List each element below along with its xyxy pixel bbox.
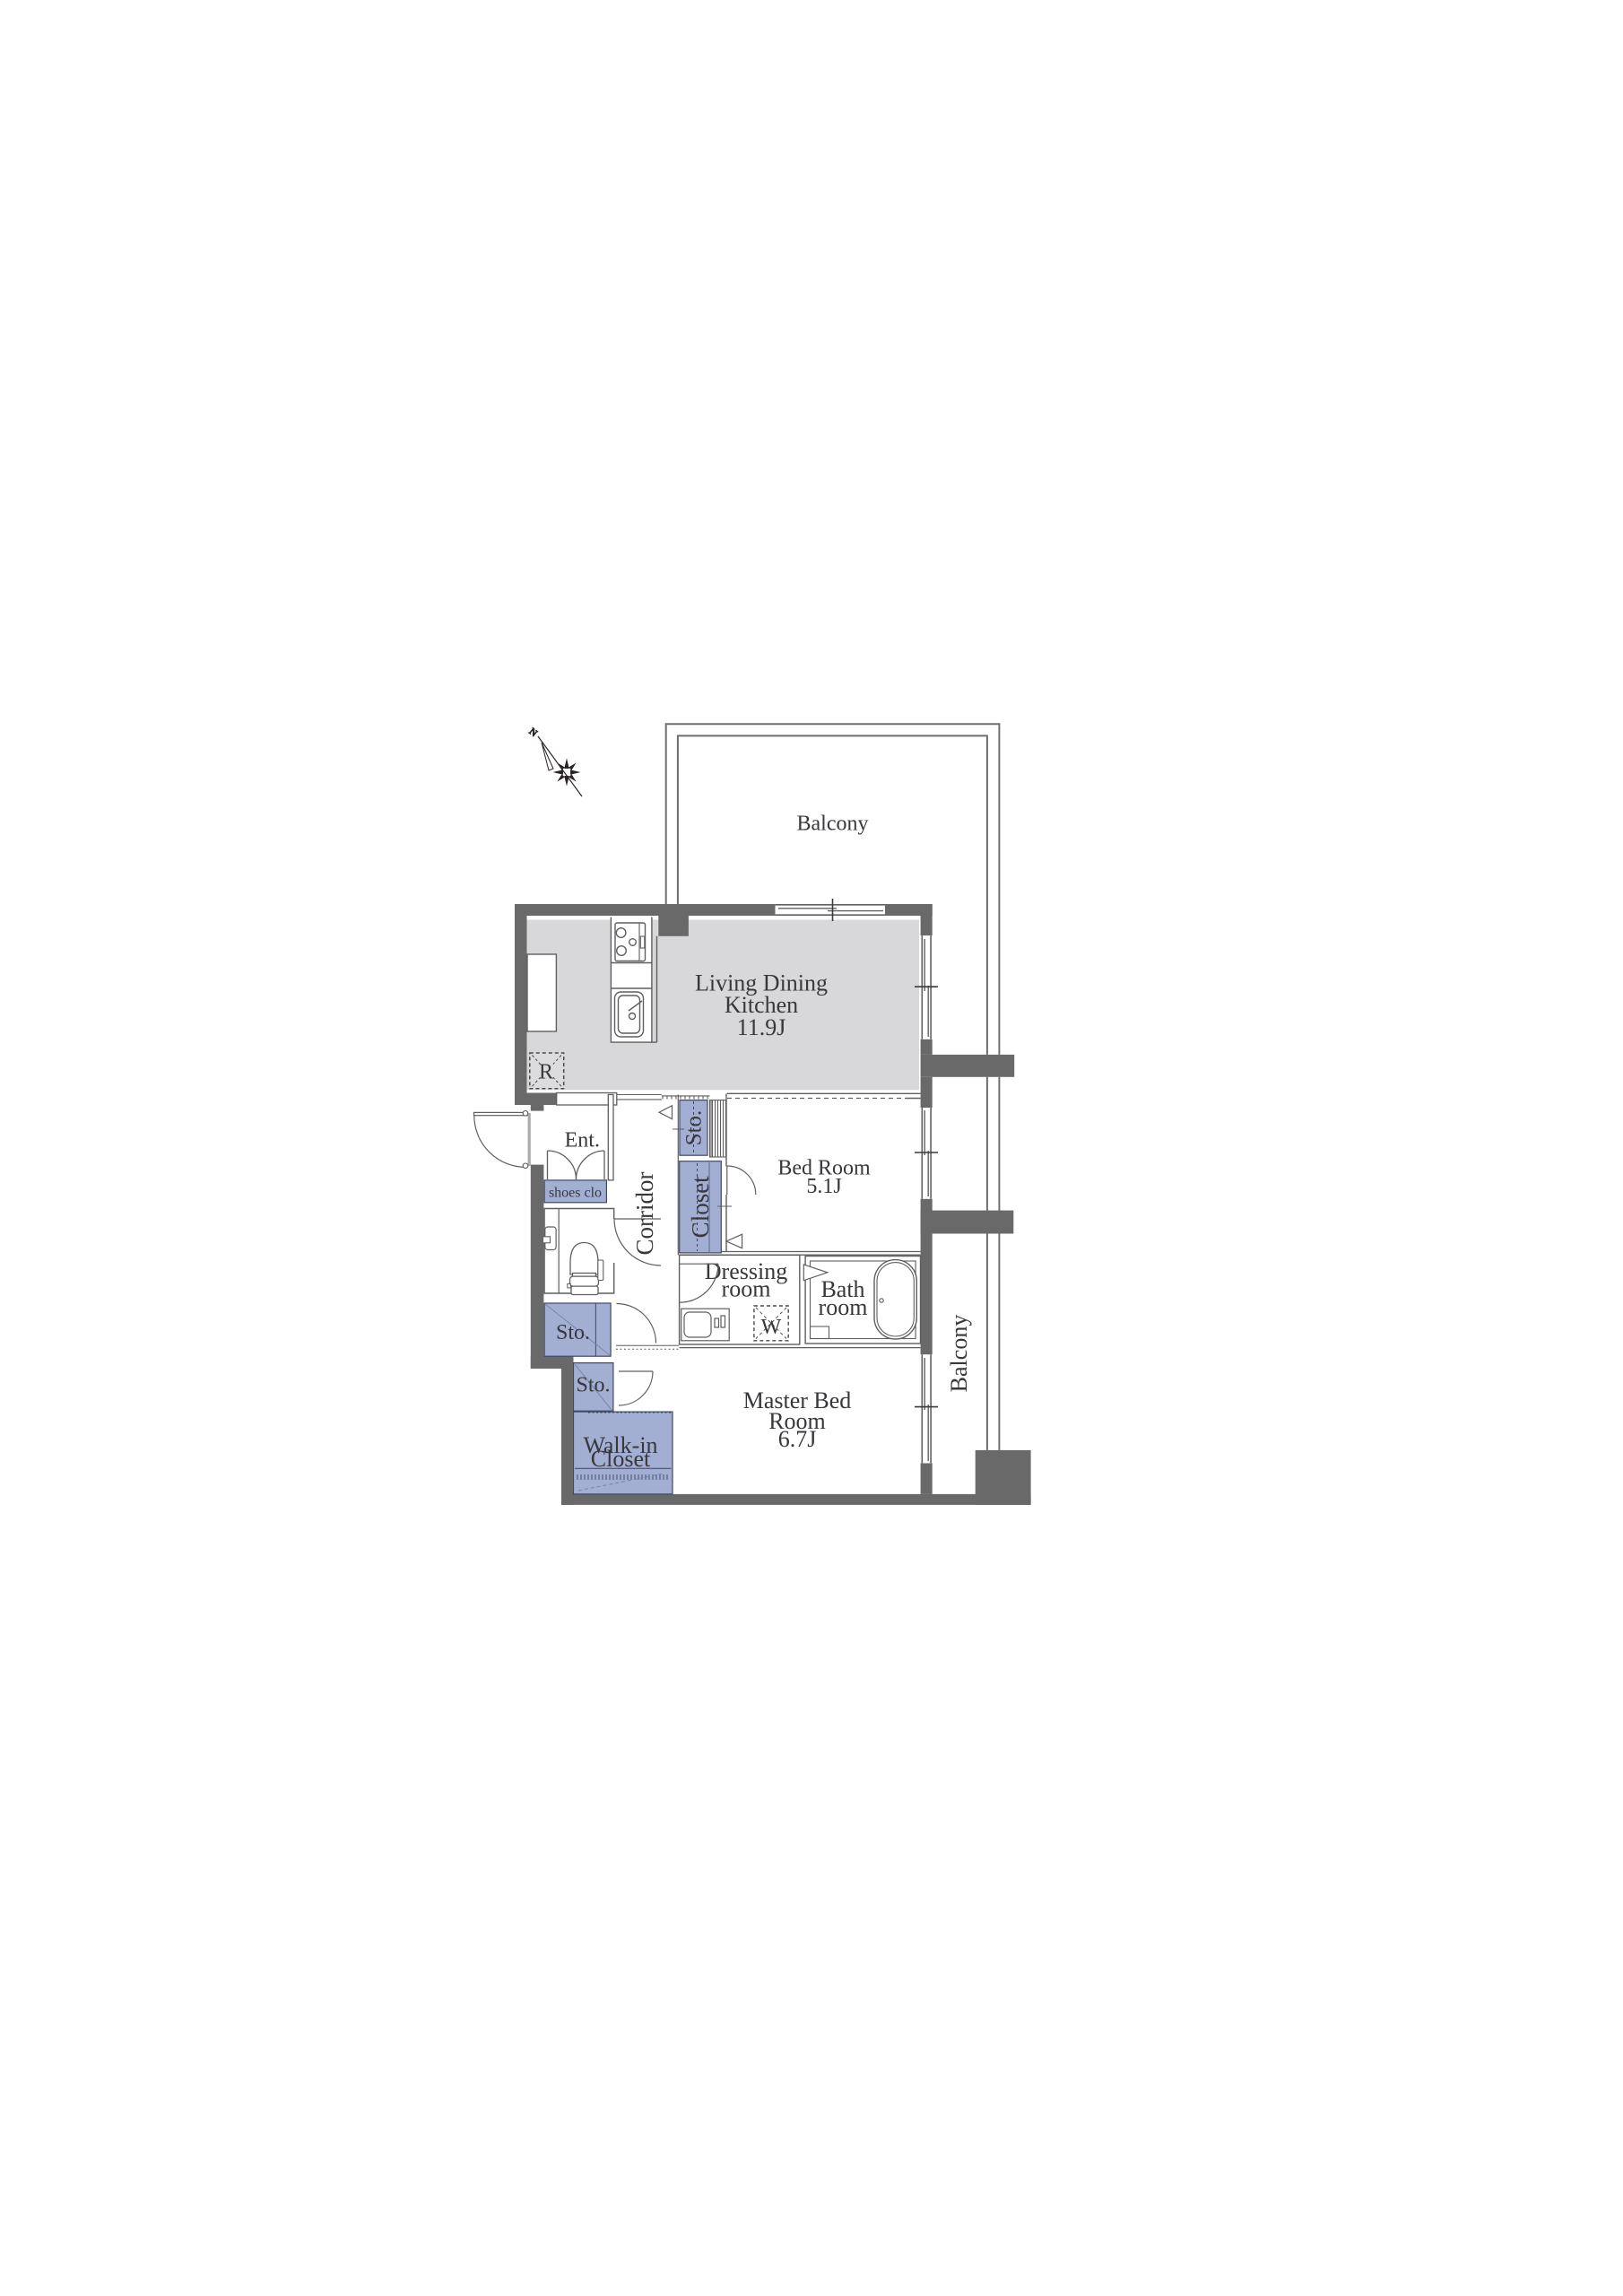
svg-text:Balcony: Balcony: [946, 1315, 972, 1393]
svg-text:Ent.: Ent.: [565, 1128, 600, 1152]
svg-text:Closet: Closet: [591, 1446, 651, 1472]
svg-text:W: W: [761, 1316, 782, 1339]
svg-text:11.9J: 11.9J: [737, 1014, 786, 1040]
svg-text:Sto.: Sto.: [682, 1110, 707, 1146]
svg-text:R: R: [539, 1061, 553, 1084]
svg-text:Closet: Closet: [687, 1176, 714, 1239]
svg-text:shoes clo: shoes clo: [549, 1186, 602, 1201]
svg-text:room: room: [819, 1294, 868, 1320]
svg-text:6.7J: 6.7J: [778, 1426, 817, 1452]
svg-text:5.1J: 5.1J: [806, 1175, 841, 1198]
svg-text:room: room: [722, 1276, 771, 1302]
svg-text:Corridor: Corridor: [631, 1171, 658, 1255]
svg-text:Balcony: Balcony: [797, 813, 869, 836]
svg-text:Sto.: Sto.: [576, 1374, 610, 1397]
svg-text:Sto.: Sto.: [556, 1321, 590, 1344]
